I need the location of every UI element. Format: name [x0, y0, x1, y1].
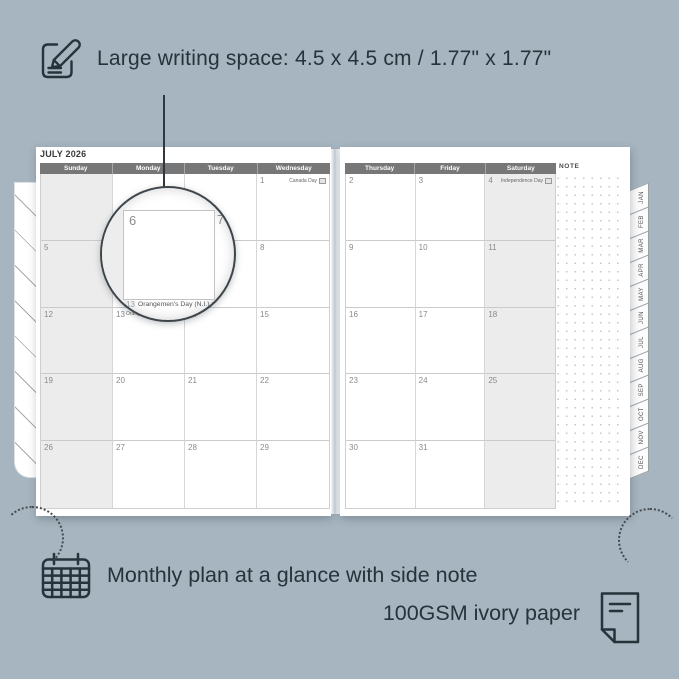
- date-number: 11: [488, 243, 496, 252]
- day-header: Monday: [113, 163, 186, 174]
- calendar-cell: 16: [346, 308, 416, 375]
- left-day-header-row: SundayMondayTuesdayWednesday: [40, 163, 330, 174]
- calendar-cell: [485, 441, 555, 508]
- calendar-cell: 30: [346, 441, 416, 508]
- calendar-cell: 27: [113, 441, 185, 508]
- date-number: 24: [419, 376, 428, 385]
- bottom-annotation-2-text: 100GSM ivory paper: [0, 601, 580, 626]
- paper-note-icon: [598, 590, 642, 646]
- calendar-cell: 10: [416, 241, 486, 308]
- date-number: 27: [116, 443, 125, 452]
- date-number: 29: [260, 443, 269, 452]
- day-header: Friday: [415, 163, 485, 174]
- calendar-cell: 20: [113, 374, 185, 441]
- calendar-cell: 14: [185, 308, 257, 375]
- corner-dots-left: [0, 506, 64, 570]
- right-calendar-grid: 234Independence Day910111617182324253031: [345, 174, 556, 509]
- callout-line: [163, 95, 165, 188]
- planner-right-page: ThursdayFridaySaturday 234Independence D…: [340, 147, 630, 516]
- date-number: 1: [260, 176, 264, 185]
- calendar-cell: 21: [185, 374, 257, 441]
- magnified-holiday-row: 13 Orangemen's Day (N.I.): [126, 300, 219, 309]
- day-header: Sunday: [40, 163, 113, 174]
- calendar-cell: 9: [346, 241, 416, 308]
- canada-flag-icon: [319, 178, 326, 184]
- holiday-label: Independence Day: [501, 178, 552, 184]
- calendar-cell: 26: [41, 441, 113, 508]
- calendar-cell: 24: [416, 374, 486, 441]
- calendar-cell: 23: [346, 374, 416, 441]
- date-number: 10: [419, 243, 428, 252]
- date-number: 4: [488, 176, 492, 185]
- calendar-cell: 28: [185, 441, 257, 508]
- date-number: 25: [488, 376, 497, 385]
- magnified-writing-cell: 6: [123, 210, 215, 300]
- pencil-note-icon: [36, 34, 86, 84]
- date-number: 28: [188, 443, 197, 452]
- calendar-cell: 31: [416, 441, 486, 508]
- note-dot-grid: [554, 174, 624, 508]
- magnified-date-13: 13: [126, 300, 135, 309]
- bottom-annotation-1: Monthly plan at a glance with side note: [40, 551, 478, 600]
- calendar-cell: 29: [257, 441, 329, 508]
- day-header: Wednesday: [258, 163, 331, 174]
- top-annotation-text: Large writing space: 4.5 x 4.5 cm / 1.77…: [97, 47, 551, 71]
- day-header: Saturday: [486, 163, 556, 174]
- date-number: 23: [349, 376, 358, 385]
- date-number: 15: [260, 310, 269, 319]
- date-number: 12: [44, 310, 53, 319]
- bottom-annotation-1-text: Monthly plan at a glance with side note: [107, 563, 478, 588]
- calendar-cell: 8: [257, 241, 329, 308]
- calendar-cell: 4Independence Day: [485, 174, 555, 241]
- magnified-holiday-text: Orangemen's Day (N.I.): [138, 301, 210, 308]
- date-number: 5: [44, 243, 48, 252]
- month-title: JULY 2026: [40, 149, 86, 159]
- corner-dots-right: [618, 508, 679, 572]
- date-number: 19: [44, 376, 53, 385]
- day-header: Tuesday: [185, 163, 258, 174]
- date-number: 22: [260, 376, 269, 385]
- date-number: 16: [349, 310, 358, 319]
- magnified-sunday-column: [102, 188, 124, 320]
- calendar-cell: 19: [41, 374, 113, 441]
- calendar-cell: 11: [485, 241, 555, 308]
- holiday-label: Canada Day: [289, 178, 326, 184]
- date-number: 31: [419, 443, 428, 452]
- right-calendar-table: ThursdayFridaySaturday 234Independence D…: [345, 163, 556, 509]
- note-label: NOTE: [559, 163, 579, 170]
- ni-flag-icon: [212, 302, 219, 308]
- date-number: 3: [419, 176, 423, 185]
- calendar-cell: 25: [485, 374, 555, 441]
- calendar-cell: 15: [257, 308, 329, 375]
- calendar-cell: 2: [346, 174, 416, 241]
- date-number: 8: [260, 243, 264, 252]
- us-flag-icon: [545, 178, 552, 184]
- calendar-cell: 17: [416, 308, 486, 375]
- date-number: 9: [349, 243, 353, 252]
- page-seam: [331, 149, 340, 514]
- calendar-cell: 3: [416, 174, 486, 241]
- date-number: 2: [349, 176, 353, 185]
- date-number: 21: [188, 376, 197, 385]
- date-number: 18: [488, 310, 497, 319]
- magnified-date-7: 7: [217, 212, 224, 227]
- day-header: Thursday: [345, 163, 415, 174]
- top-annotation: Large writing space: 4.5 x 4.5 cm / 1.77…: [36, 34, 551, 84]
- right-day-header-row: ThursdayFridaySaturday: [345, 163, 556, 174]
- date-number: 20: [116, 376, 125, 385]
- magnified-date-6: 6: [129, 213, 136, 228]
- date-number: 30: [349, 443, 358, 452]
- calendar-cell: 18: [485, 308, 555, 375]
- calendar-cell: 22: [257, 374, 329, 441]
- date-number: 26: [44, 443, 53, 452]
- date-number: 17: [419, 310, 428, 319]
- magnifier-circle: 6 7 13 Orangemen's Day (N.I.): [100, 186, 236, 322]
- product-image: Large writing space: 4.5 x 4.5 cm / 1.77…: [0, 0, 679, 679]
- calendar-cell: 1Canada Day: [257, 174, 329, 241]
